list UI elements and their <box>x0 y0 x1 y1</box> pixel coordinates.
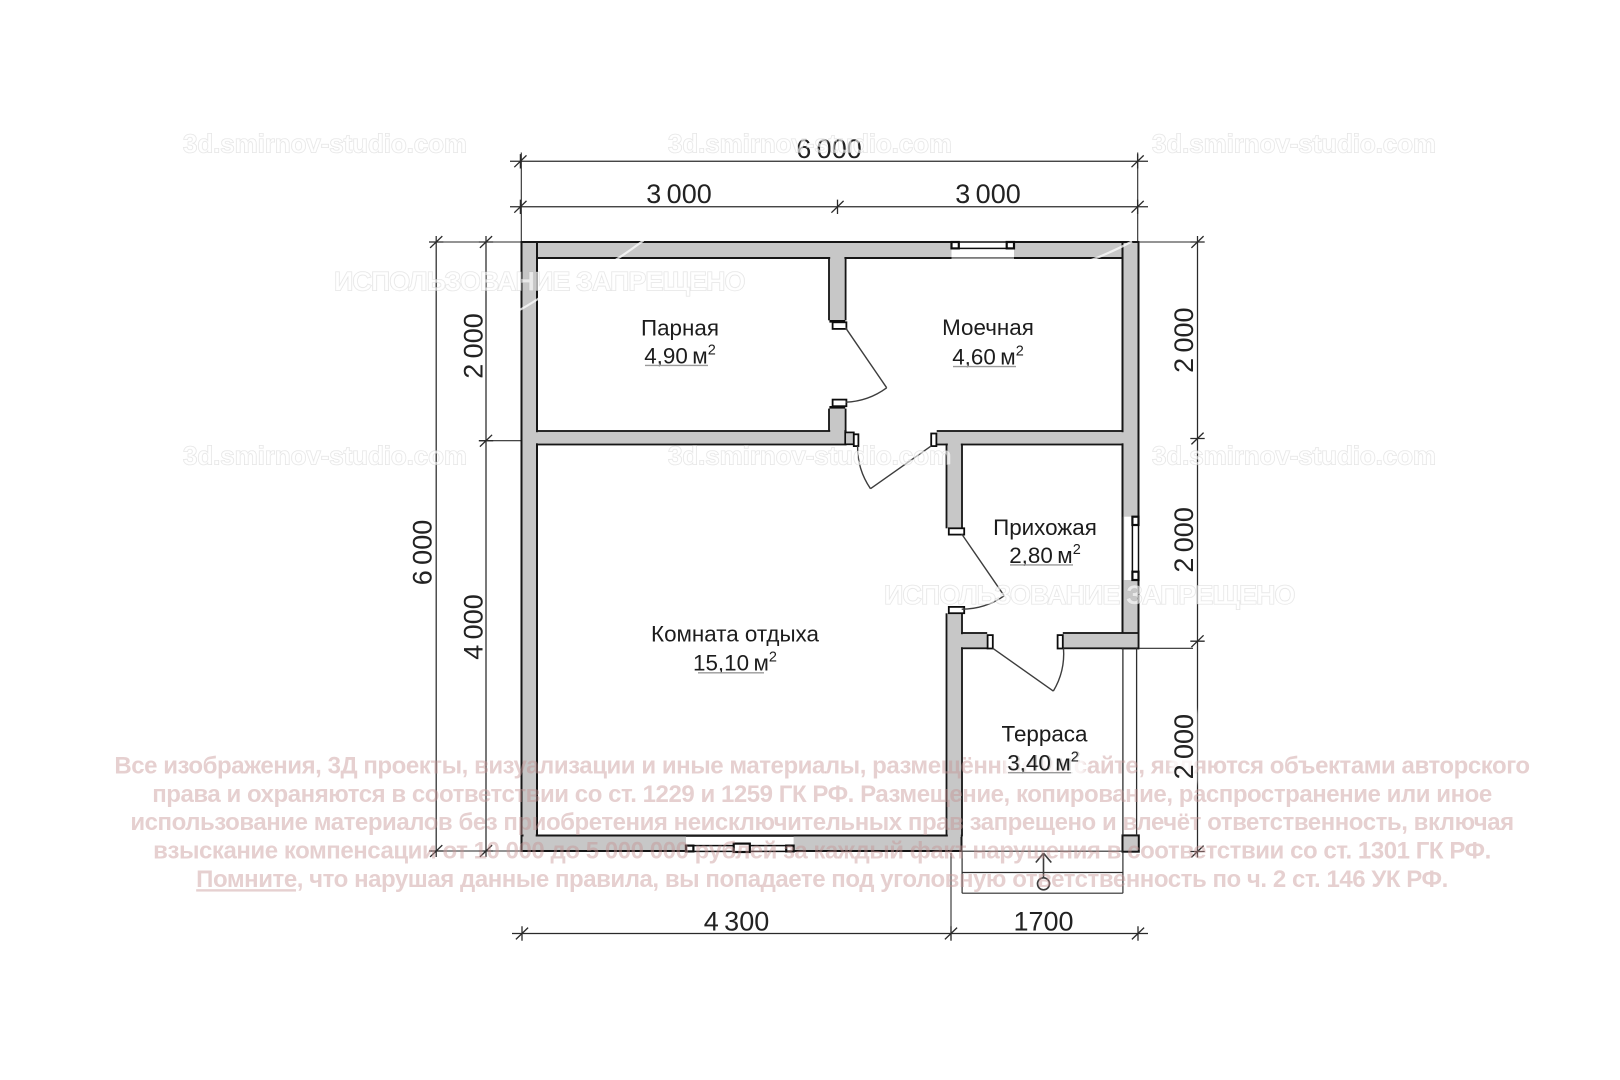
svg-text:3 000: 3 000 <box>646 179 711 209</box>
svg-text:4 300: 4 300 <box>704 907 769 937</box>
svg-text:3d.smirnov-studio.com: 3d.smirnov-studio.com <box>668 129 952 159</box>
svg-text:Помните, что нарушая данные пр: Помните, что нарушая данные правила, вы … <box>196 866 1448 893</box>
svg-text:ИСПОЛЬЗОВАНИЕ ЗАПРЕЩЕНО: ИСПОЛЬЗОВАНИЕ ЗАПРЕЩЕНО <box>334 267 744 297</box>
svg-text:2 000: 2 000 <box>1169 507 1199 572</box>
svg-text:3,40 м2: 3,40 м2 <box>1007 750 1079 776</box>
svg-text:ИСПОЛЬЗОВАНИЕ ЗАПРЕЩЕНО: ИСПОЛЬЗОВАНИЕ ЗАПРЕЩЕНО <box>884 580 1294 610</box>
svg-text:4 000: 4 000 <box>459 594 489 659</box>
svg-text:3d.smirnov-studio.com: 3d.smirnov-studio.com <box>1152 441 1436 471</box>
svg-text:Терраса: Терраса <box>1002 722 1088 747</box>
svg-text:1700: 1700 <box>1013 907 1073 937</box>
svg-text:использование материалов без п: использование материалов без приобретени… <box>130 809 1513 836</box>
svg-text:3d.smirnov-studio.com: 3d.smirnov-studio.com <box>668 441 952 471</box>
svg-text:2,80 м2: 2,80 м2 <box>1009 542 1081 568</box>
svg-text:3d.smirnov-studio.com: 3d.smirnov-studio.com <box>1152 129 1436 159</box>
svg-text:Комната отдыха: Комната отдыха <box>651 622 819 647</box>
svg-text:15,10 м2: 15,10 м2 <box>693 650 777 676</box>
svg-text:2 000: 2 000 <box>1169 307 1199 372</box>
svg-text:2 000: 2 000 <box>459 313 489 378</box>
svg-text:3 000: 3 000 <box>955 179 1020 209</box>
svg-text:Парная: Парная <box>641 316 719 341</box>
svg-text:3d.smirnov-studio.com: 3d.smirnov-studio.com <box>183 441 467 471</box>
svg-text:3d.smirnov-studio.com: 3d.smirnov-studio.com <box>183 129 467 159</box>
svg-text:2 000: 2 000 <box>1169 714 1199 779</box>
svg-text:Все изображения, 3Д проекты, в: Все изображения, 3Д проекты, визуализаци… <box>114 752 1529 779</box>
svg-text:права и охраняются в соответст: права и охраняются в соответствии со ст.… <box>152 781 1492 808</box>
svg-text:Моечная: Моечная <box>942 315 1034 340</box>
svg-text:6 000: 6 000 <box>408 520 438 585</box>
svg-text:Прихожая: Прихожая <box>993 515 1097 540</box>
svg-text:4,60 м2: 4,60 м2 <box>952 344 1024 370</box>
svg-text:взыскание компенсации от 10 00: взыскание компенсации от 10 000 до 5 000… <box>153 838 1491 865</box>
svg-text:4,90 м2: 4,90 м2 <box>644 342 716 368</box>
